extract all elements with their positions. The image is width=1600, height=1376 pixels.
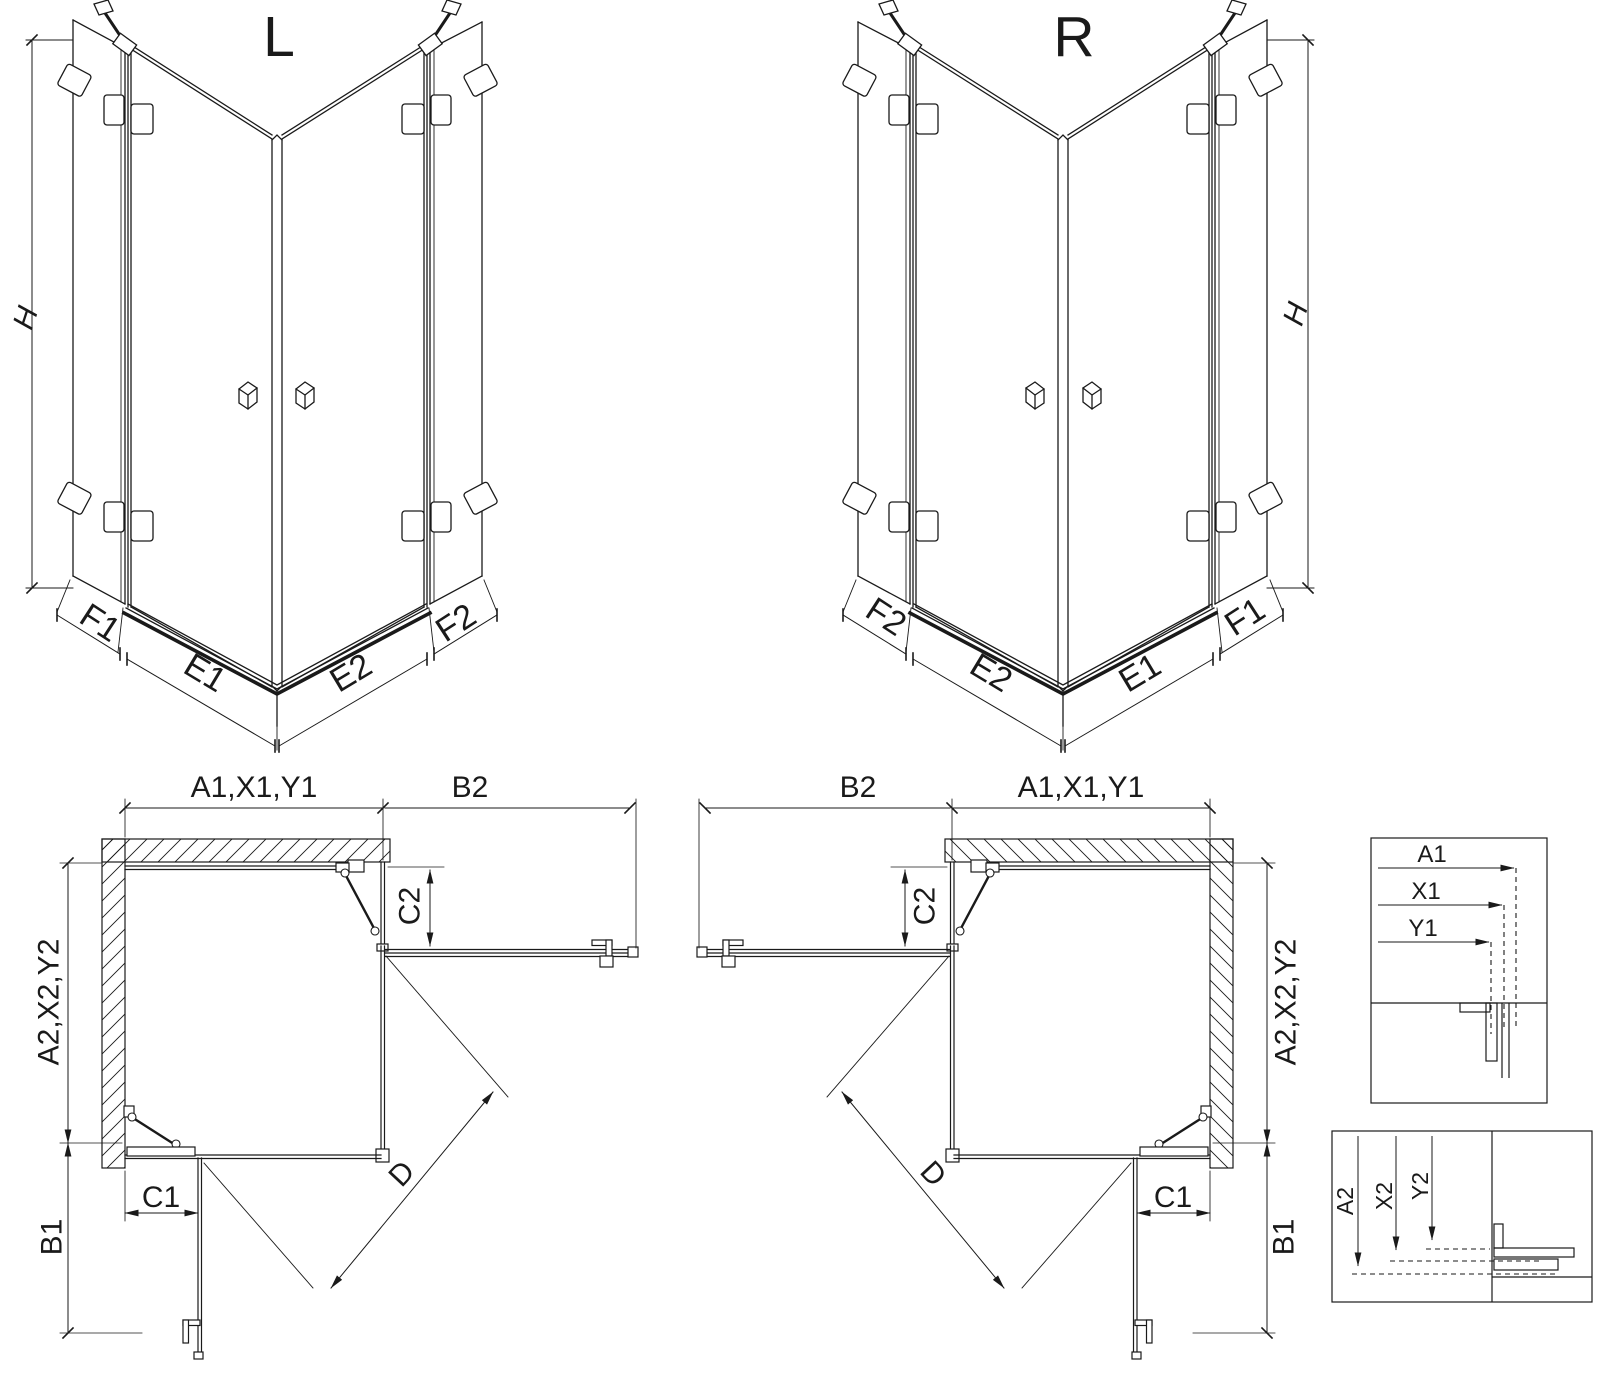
plan-return-left: B2 bbox=[452, 771, 489, 804]
profile-section bbox=[1460, 1003, 1509, 1078]
right-view-title: R bbox=[1053, 5, 1094, 69]
corner-glass bbox=[376, 946, 389, 1162]
door-knob-left bbox=[239, 382, 257, 409]
detail-y2-label: Y2 bbox=[1407, 1172, 1433, 1200]
wall-tabs bbox=[57, 63, 498, 515]
plan-b1-right: B1 bbox=[1268, 1219, 1301, 1256]
detail-y1-label: Y1 bbox=[1408, 915, 1437, 942]
detail-a1-label: A1 bbox=[1417, 841, 1446, 868]
plan-width-left: A1,X1,Y1 bbox=[191, 771, 318, 804]
left-view-title: L bbox=[263, 5, 295, 69]
plan-view-mirrored bbox=[697, 799, 1275, 1359]
door-hinges bbox=[104, 95, 451, 541]
detail-box-depths bbox=[1332, 1131, 1592, 1302]
segment-e2-right: E2 bbox=[963, 646, 1018, 700]
segment-f2-right: F2 bbox=[859, 590, 913, 643]
detail-a2-label: A2 bbox=[1332, 1187, 1358, 1215]
door-support-arm-bottom bbox=[124, 1106, 195, 1156]
open-door-top bbox=[377, 862, 388, 951]
detail-x2-label: X2 bbox=[1371, 1182, 1397, 1210]
plan-c2-left: C2 bbox=[394, 887, 427, 925]
plan-c1-right: C1 bbox=[1154, 1181, 1192, 1214]
segment-e1-left: E1 bbox=[177, 646, 232, 700]
walls bbox=[102, 839, 390, 1168]
shower-tray bbox=[124, 604, 430, 694]
door-support-arm-top bbox=[336, 863, 379, 935]
side-panel-rail bbox=[385, 799, 638, 967]
technical-drawing-page: L R H H F1 E1 E2 F2 F2 E2 E1 F1 A1,X1,Y1… bbox=[0, 0, 1600, 1371]
detail-box-widths bbox=[1371, 838, 1547, 1103]
door-panel-left bbox=[128, 45, 272, 687]
door-panel-right bbox=[282, 45, 427, 687]
plan-depth-right: A2,X2,Y2 bbox=[1270, 939, 1303, 1066]
shower-enclosure-diagram: L R H H F1 E1 E2 F2 F2 E2 E1 F1 A1,X1,Y1… bbox=[0, 0, 1600, 1371]
plan-b1-left: B1 bbox=[36, 1219, 69, 1256]
support-bar-right bbox=[418, 0, 461, 56]
plan-view bbox=[60, 799, 638, 1359]
support-bar-left bbox=[94, 0, 137, 56]
door-swing-lines bbox=[204, 956, 508, 1288]
bottom-dimensions bbox=[57, 580, 497, 752]
plan-return-right: B2 bbox=[840, 771, 877, 804]
open-door-bottom bbox=[183, 1158, 203, 1359]
plan-width-right: A1,X1,Y1 bbox=[1018, 771, 1145, 804]
profile-section bbox=[1492, 1224, 1592, 1277]
segment-f2-left: F2 bbox=[429, 596, 483, 649]
plan-c2-right: C2 bbox=[909, 887, 942, 925]
height-label-left: H bbox=[7, 302, 45, 333]
detail-x1-label: X1 bbox=[1411, 878, 1440, 905]
plan-depth-left: A2,X2,Y2 bbox=[33, 939, 66, 1066]
door-knob-right bbox=[296, 382, 314, 409]
plan-c1-left: C1 bbox=[142, 1181, 180, 1214]
corner-post bbox=[272, 135, 282, 726]
height-label-right: H bbox=[1277, 298, 1315, 329]
